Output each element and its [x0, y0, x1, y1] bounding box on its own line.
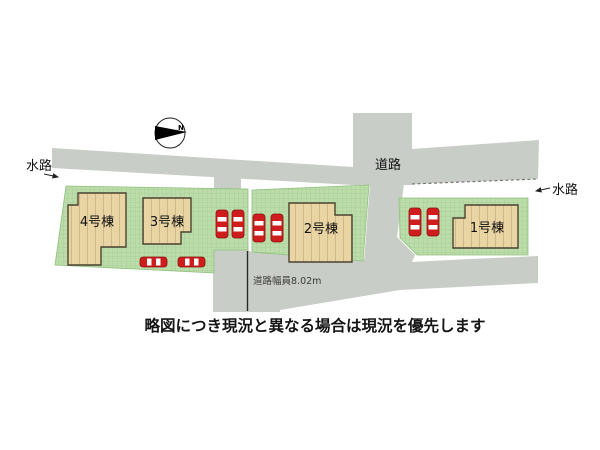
- building-4-label: 4号棟: [80, 215, 114, 230]
- waterway-left-label: 水路: [26, 158, 52, 174]
- car-icon: [427, 208, 439, 236]
- car-icon: [216, 210, 228, 238]
- waterway-right-label: 水路: [552, 182, 578, 198]
- building-3-label: 3号棟: [150, 215, 184, 230]
- car-icon: [178, 257, 205, 267]
- car-icon: [253, 214, 265, 242]
- car-icon: [232, 210, 244, 238]
- road-north-branch: [353, 113, 412, 185]
- site-plan: 4号棟 3号棟 2号棟 1号棟 道路幅員8.02m N 水路 道路 水路 略図に…: [0, 0, 600, 450]
- car-icon: [409, 208, 421, 236]
- car-icon: [271, 214, 283, 242]
- car-icon: [140, 257, 167, 267]
- building-1-label: 1号棟: [470, 221, 504, 236]
- road-connector-stub: [214, 176, 241, 190]
- disclaimer-note: 略図につき現況と異なる場合は現況を優先します: [144, 316, 485, 335]
- building-2-label: 2号棟: [304, 222, 338, 237]
- north-arrow-label: N: [178, 124, 184, 132]
- road-width-label: 道路幅員8.02m: [253, 275, 321, 287]
- road-label: 道路: [375, 157, 401, 173]
